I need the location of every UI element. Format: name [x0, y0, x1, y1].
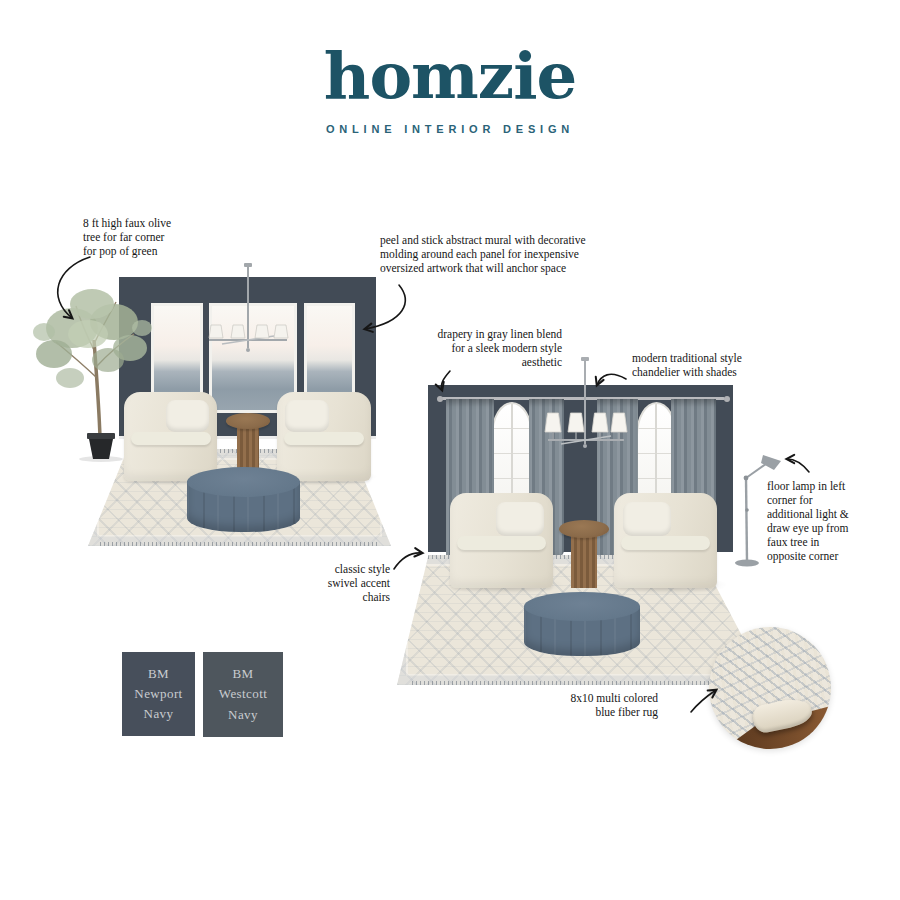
annotation-mural: peel and stick abstract mural with decor…	[380, 233, 586, 275]
rod-finial-left	[437, 396, 443, 402]
brand-name: homzie	[0, 42, 900, 109]
arrow-to-chairs	[394, 553, 422, 569]
annotation-drapery: drapery in gray linen blend for a sleek …	[427, 327, 562, 369]
chandelier-right-icon	[535, 356, 635, 451]
rod-finial-right	[724, 396, 730, 402]
chandelier-left-icon	[200, 262, 300, 357]
annotation-olive-tree: 8 ft high faux olive tree for far corner…	[83, 216, 171, 258]
pedestal-table-left	[226, 413, 270, 473]
brand-logo: homzie ONLINE INTERIOR DESIGN	[0, 42, 900, 135]
paint-swatch-westcott-navy: BM Westcott Navy	[203, 652, 283, 737]
swatch-label: BM Westcott Navy	[219, 664, 267, 724]
brand-tagline: ONLINE INTERIOR DESIGN	[0, 123, 900, 135]
swatch-label: BM Newport Navy	[134, 664, 182, 724]
annotation-chairs: classic style swivel accent chairs	[320, 562, 390, 604]
mood-board: homzie ONLINE INTERIOR DESIGN	[0, 0, 900, 900]
paint-swatch-newport-navy: BM Newport Navy	[122, 652, 195, 736]
accent-chair-right-2	[614, 493, 717, 588]
annotation-floor-lamp: floor lamp in left corner for additional…	[767, 479, 849, 563]
accent-chair-right-1	[450, 493, 553, 588]
round-ottoman-left	[187, 467, 300, 532]
annotation-chandelier: modern traditional style chandelier with…	[632, 351, 742, 379]
round-ottoman-right	[524, 592, 640, 656]
rug-detail-photo	[709, 627, 831, 749]
annotation-rug: 8x10 multi colored blue fiber rug	[570, 691, 658, 719]
arrow-to-floor-lamp	[787, 459, 809, 472]
pedestal-table-right	[559, 520, 609, 588]
